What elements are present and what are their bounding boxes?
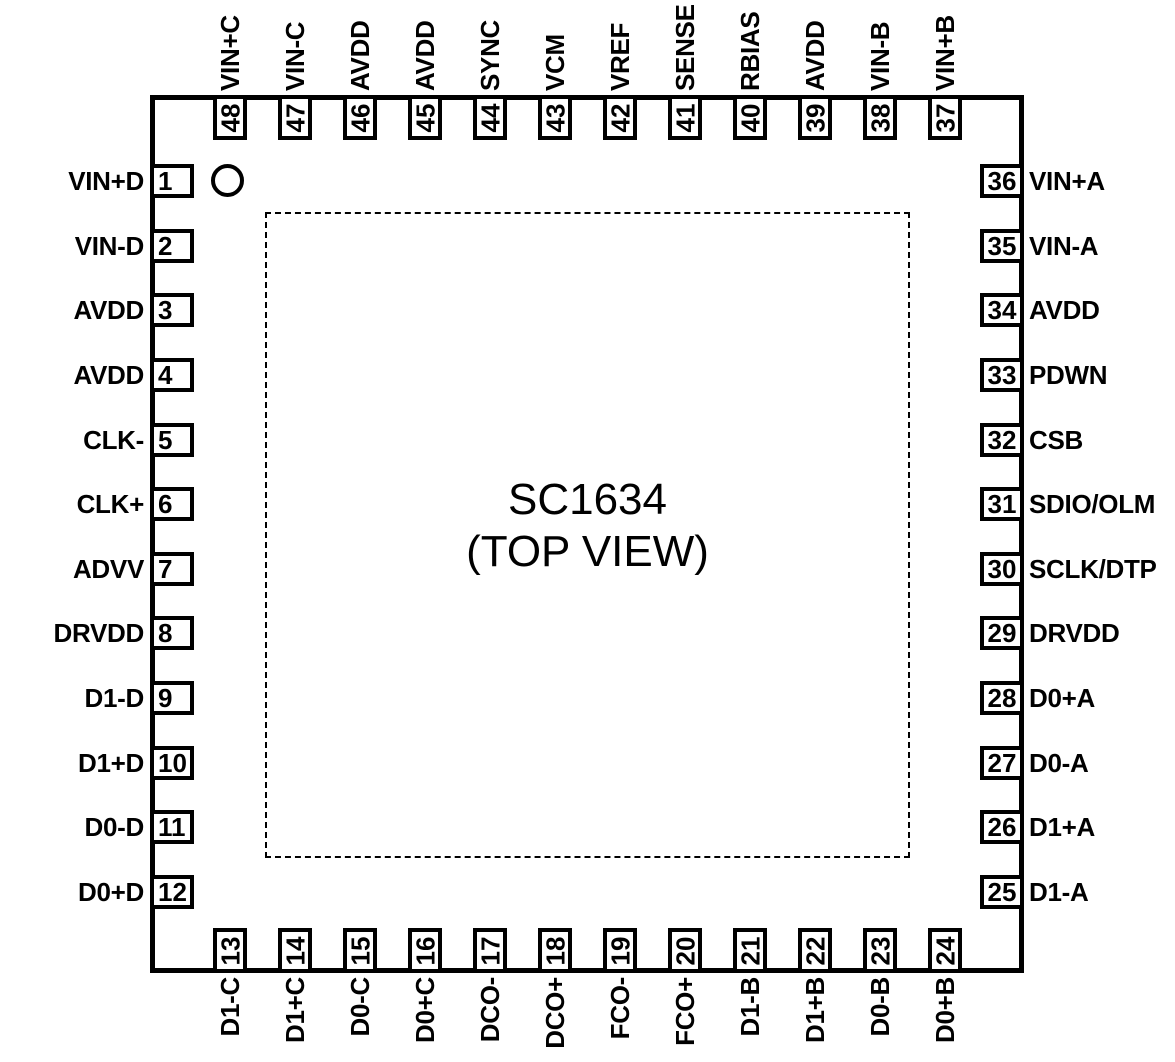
pin-21-number: 21 bbox=[737, 936, 763, 965]
pin-20-box: 20 bbox=[668, 928, 702, 973]
pin-20-label: FCO+ bbox=[671, 977, 699, 1062]
pin-41-box: 41 bbox=[668, 95, 702, 140]
pin-6-label: CLK+ bbox=[0, 490, 144, 518]
pin-30-box: 30 bbox=[980, 552, 1024, 586]
pin-19-label: FCO- bbox=[606, 977, 634, 1062]
pin-47-box: 47 bbox=[278, 95, 312, 140]
pin-13-number: 13 bbox=[217, 936, 243, 965]
pin-11-label: D0-D bbox=[0, 813, 144, 841]
pin-27-number: 27 bbox=[988, 750, 1017, 776]
pin-13-label: D1-C bbox=[216, 977, 244, 1062]
pin-9-label: D1-D bbox=[0, 684, 144, 712]
pin-33-label: PDWN bbox=[1029, 361, 1175, 389]
pin-34-label: AVDD bbox=[1029, 296, 1175, 324]
pin-46-number: 46 bbox=[347, 103, 373, 132]
pin-25-label: D1-A bbox=[1029, 878, 1175, 906]
pin-26-box: 26 bbox=[980, 810, 1024, 844]
pin-45-number: 45 bbox=[412, 103, 438, 132]
chip-name: SC1634 bbox=[265, 474, 910, 526]
pin-48-number: 48 bbox=[217, 103, 243, 132]
pin-3-number: 3 bbox=[158, 297, 172, 323]
pin-12-label: D0+D bbox=[0, 878, 144, 906]
pin-36-label: VIN+A bbox=[1029, 167, 1175, 195]
pin-6-box: 6 bbox=[150, 487, 194, 521]
pin-41-number: 41 bbox=[672, 103, 698, 132]
pin-48-label: VIN+C bbox=[216, 5, 244, 91]
pin-40-label: RBIAS bbox=[736, 5, 764, 91]
pin-21-label: D1-B bbox=[736, 977, 764, 1062]
pin-44-box: 44 bbox=[473, 95, 507, 140]
pin-28-box: 28 bbox=[980, 681, 1024, 715]
pin-20-number: 20 bbox=[672, 936, 698, 965]
pin-33-box: 33 bbox=[980, 358, 1024, 392]
pin-8-number: 8 bbox=[158, 620, 172, 646]
pin-35-number: 35 bbox=[988, 233, 1017, 259]
pin-34-box: 34 bbox=[980, 293, 1024, 327]
pin-37-number: 37 bbox=[932, 103, 958, 132]
pin-23-box: 23 bbox=[863, 928, 897, 973]
pin-26-label: D1+A bbox=[1029, 813, 1175, 841]
pin-22-number: 22 bbox=[802, 936, 828, 965]
pin-46-box: 46 bbox=[343, 95, 377, 140]
pin-9-number: 9 bbox=[158, 685, 172, 711]
pin-27-box: 27 bbox=[980, 746, 1024, 780]
pin-12-number: 12 bbox=[158, 879, 187, 905]
pin-28-number: 28 bbox=[988, 685, 1017, 711]
pin-3-box: 3 bbox=[150, 293, 194, 327]
pin-39-number: 39 bbox=[802, 103, 828, 132]
pin-5-label: CLK- bbox=[0, 426, 144, 454]
pin-2-number: 2 bbox=[158, 233, 172, 259]
pin-5-number: 5 bbox=[158, 427, 172, 453]
pin-2-label: VIN-D bbox=[0, 232, 144, 260]
pin-43-number: 43 bbox=[542, 103, 568, 132]
pin-25-number: 25 bbox=[988, 879, 1017, 905]
pin-22-box: 22 bbox=[798, 928, 832, 973]
pin-10-number: 10 bbox=[158, 750, 187, 776]
pin-3-label: AVDD bbox=[0, 296, 144, 324]
pin-18-box: 18 bbox=[538, 928, 572, 973]
pin-10-box: 10 bbox=[150, 746, 194, 780]
pin-39-label: AVDD bbox=[801, 5, 829, 91]
pin-41-label: SENSE bbox=[671, 5, 699, 91]
pin-43-box: 43 bbox=[538, 95, 572, 140]
pinout-diagram: SC1634 (TOP VIEW) 1 VIN+D 2 VIN-D 3 AVDD… bbox=[0, 0, 1175, 1062]
pin-34-number: 34 bbox=[988, 297, 1017, 323]
pin-42-box: 42 bbox=[603, 95, 637, 140]
pin-26-number: 26 bbox=[988, 814, 1017, 840]
pin-18-number: 18 bbox=[542, 936, 568, 965]
pin-42-label: VREF bbox=[606, 5, 634, 91]
pin-7-label: ADVV bbox=[0, 555, 144, 583]
pin-23-number: 23 bbox=[867, 936, 893, 965]
pin-15-box: 15 bbox=[343, 928, 377, 973]
pin-21-box: 21 bbox=[733, 928, 767, 973]
pin-14-number: 14 bbox=[282, 936, 308, 965]
pin-30-number: 30 bbox=[988, 556, 1017, 582]
pin-7-number: 7 bbox=[158, 556, 172, 582]
pin-35-label: VIN-A bbox=[1029, 232, 1175, 260]
pin1-indicator-icon bbox=[211, 164, 244, 197]
pin-24-box: 24 bbox=[928, 928, 962, 973]
pin-18-label: DCO+ bbox=[541, 977, 569, 1062]
pin-44-label: SYNC bbox=[476, 5, 504, 91]
pin-19-box: 19 bbox=[603, 928, 637, 973]
pin-38-number: 38 bbox=[867, 103, 893, 132]
pin-40-box: 40 bbox=[733, 95, 767, 140]
pin-13-box: 13 bbox=[213, 928, 247, 973]
pin-15-label: D0-C bbox=[346, 977, 374, 1062]
pin-38-label: VIN-B bbox=[866, 5, 894, 91]
pin-31-label: SDIO/OLM bbox=[1029, 490, 1175, 518]
pin-16-label: D0+C bbox=[411, 977, 439, 1062]
pin-2-box: 2 bbox=[150, 229, 194, 263]
pin-22-label: D1+B bbox=[801, 977, 829, 1062]
pin-8-label: DRVDD bbox=[0, 619, 144, 647]
pin-29-label: DRVDD bbox=[1029, 619, 1175, 647]
pin-32-number: 32 bbox=[988, 427, 1017, 453]
pin-4-label: AVDD bbox=[0, 361, 144, 389]
pin-10-label: D1+D bbox=[0, 749, 144, 777]
pin-12-box: 12 bbox=[150, 875, 194, 909]
view-label: (TOP VIEW) bbox=[265, 526, 910, 578]
pin-44-number: 44 bbox=[477, 103, 503, 132]
pin-25-box: 25 bbox=[980, 875, 1024, 909]
pin-45-label: AVDD bbox=[411, 5, 439, 91]
pin-46-label: AVDD bbox=[346, 5, 374, 91]
pin-48-box: 48 bbox=[213, 95, 247, 140]
pin-1-label: VIN+D bbox=[0, 167, 144, 195]
pin-4-number: 4 bbox=[158, 362, 172, 388]
pin-28-label: D0+A bbox=[1029, 684, 1175, 712]
pin-30-label: SCLK/DTP bbox=[1029, 555, 1175, 583]
pin-1-number: 1 bbox=[158, 168, 172, 194]
pin-40-number: 40 bbox=[737, 103, 763, 132]
pin-14-box: 14 bbox=[278, 928, 312, 973]
pin-47-label: VIN-C bbox=[281, 5, 309, 91]
pin-16-box: 16 bbox=[408, 928, 442, 973]
pin-36-box: 36 bbox=[980, 164, 1024, 198]
pin-5-box: 5 bbox=[150, 423, 194, 457]
pin-7-box: 7 bbox=[150, 552, 194, 586]
pin-38-box: 38 bbox=[863, 95, 897, 140]
pin-27-label: D0-A bbox=[1029, 749, 1175, 777]
pin-23-label: D0-B bbox=[866, 977, 894, 1062]
pin-9-box: 9 bbox=[150, 681, 194, 715]
pin-11-number: 11 bbox=[158, 814, 186, 840]
pin-45-box: 45 bbox=[408, 95, 442, 140]
pin-32-label: CSB bbox=[1029, 426, 1175, 454]
chip-title-block: SC1634 (TOP VIEW) bbox=[265, 474, 910, 578]
pin-29-number: 29 bbox=[988, 620, 1017, 646]
pin-15-number: 15 bbox=[347, 936, 373, 965]
pin-24-label: D0+B bbox=[931, 977, 959, 1062]
pin-32-box: 32 bbox=[980, 423, 1024, 457]
pin-43-label: VCM bbox=[541, 5, 569, 91]
pin-17-number: 17 bbox=[477, 936, 503, 965]
pin-16-number: 16 bbox=[412, 936, 438, 965]
pin-31-number: 31 bbox=[988, 491, 1017, 517]
pin-29-box: 29 bbox=[980, 616, 1024, 650]
pin-37-label: VIN+B bbox=[931, 5, 959, 91]
pin-6-number: 6 bbox=[158, 491, 172, 517]
pin-39-box: 39 bbox=[798, 95, 832, 140]
pin-37-box: 37 bbox=[928, 95, 962, 140]
pin-47-number: 47 bbox=[282, 103, 308, 132]
pin-1-box: 1 bbox=[150, 164, 194, 198]
pin-8-box: 8 bbox=[150, 616, 194, 650]
pin-4-box: 4 bbox=[150, 358, 194, 392]
pin-31-box: 31 bbox=[980, 487, 1024, 521]
pin-36-number: 36 bbox=[988, 168, 1017, 194]
pin-24-number: 24 bbox=[932, 936, 958, 965]
pin-17-label: DCO- bbox=[476, 977, 504, 1062]
pin-14-label: D1+C bbox=[281, 977, 309, 1062]
pin-17-box: 17 bbox=[473, 928, 507, 973]
pin-19-number: 19 bbox=[607, 936, 633, 965]
pin-33-number: 33 bbox=[988, 362, 1017, 388]
pin-35-box: 35 bbox=[980, 229, 1024, 263]
pin-42-number: 42 bbox=[607, 103, 633, 132]
pin-11-box: 11 bbox=[150, 810, 194, 844]
